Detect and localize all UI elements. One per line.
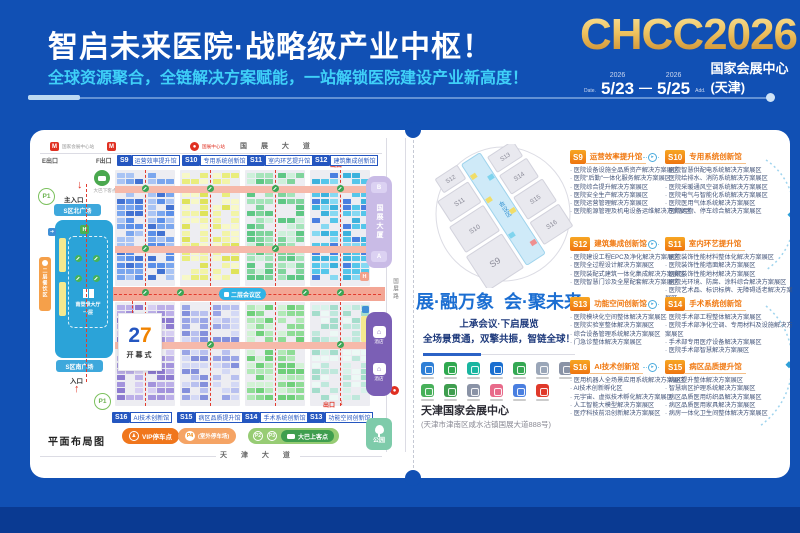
- hall-item: 医院给排水、消防系统解决方案展区: [665, 175, 793, 183]
- partner-app-caption: [467, 399, 480, 401]
- list-chip-S10: S10专用系统创新馆: [665, 150, 746, 164]
- road-right-label: 国展路: [391, 278, 399, 301]
- exit-bottom-label: 出口: [323, 400, 335, 409]
- escalator-icon: [302, 289, 309, 296]
- map-chip-name: 病区品质提升馆: [195, 412, 243, 423]
- ticket-perforation: [413, 140, 414, 468]
- map-chip-id: S10: [182, 155, 200, 166]
- list-chip-S13: S13功能空间创新馆: [570, 297, 651, 311]
- plan-caption: 平面布局图: [48, 433, 106, 448]
- escalator-icon: [177, 289, 184, 296]
- list-chip-id: S15: [665, 360, 685, 374]
- chip-connector-arrow-icon: ▸: [648, 240, 657, 249]
- conference-zone-pill: 二层会议区: [219, 288, 266, 300]
- escalator-icon: [75, 275, 82, 282]
- escalator-icon: [75, 255, 82, 262]
- footer-bar: [0, 507, 800, 533]
- escalator-icon: [93, 255, 100, 262]
- exit-e-label: E出口: [42, 156, 58, 165]
- escalator-icon: [93, 275, 100, 282]
- hall-item: 医院装饰性能墙面解决方案展区: [665, 262, 793, 270]
- registration-floor-label: 一层: [69, 309, 107, 316]
- list-chip-id: S13: [570, 297, 590, 311]
- date-end: 5/25: [657, 80, 690, 97]
- page-subtitle: 全球资源聚合，全链解决方案赋能，一站解锁医院建设产业新高度！: [48, 64, 528, 88]
- list-chip-S11: S11室内环艺提升馆: [665, 237, 745, 251]
- partner-app-caption: [490, 377, 503, 379]
- escalator-icon: [142, 245, 149, 252]
- map-chip-id: S11: [247, 155, 265, 166]
- opening-route: [132, 301, 133, 313]
- hall-list: S9运营效率提升馆医院设备设施全品质资产解决方案展区医院"后勤"一体化服务解决方…: [570, 130, 790, 478]
- tower-b-chip: B: [371, 182, 387, 193]
- partner-app-icon: [513, 362, 526, 379]
- metro-badge-icon: ●: [190, 142, 199, 151]
- info-desk-icon: H: [80, 225, 89, 234]
- escalator-icon: [337, 341, 344, 348]
- partner-app-icon: [490, 362, 503, 379]
- tower-a-chip: A: [371, 251, 387, 262]
- brand-logo: CHCC2026: [580, 10, 797, 60]
- map-chip-S9: S9运营效率提升馆: [117, 155, 180, 166]
- escalator-icon: [207, 341, 214, 348]
- header-divider-segment: [28, 95, 80, 100]
- slogan-sub2: 全场景贯通，双擎共振，智链全球！: [413, 331, 585, 345]
- venue-short: 国家会展中心(天津): [710, 58, 800, 96]
- hall-item: 智慧病区护理系统解决方案展区: [665, 385, 793, 393]
- main-card: M 国家会展中心站 M E出口 F出口 ● 国展中心站 国 展 大 道 国展路 …: [30, 130, 790, 478]
- year-start: 2026: [610, 72, 626, 79]
- walkway-band: [115, 186, 370, 193]
- middle-column: S9S10S11S12S13S14S15S16会议区 展·融万象会·聚未来 上承…: [413, 130, 585, 478]
- map-chip-id: S14: [242, 412, 260, 423]
- road-top-line: [40, 153, 382, 154]
- partner-app-caption: [536, 399, 549, 401]
- slogan-sub1: 上承会议·下启展览: [413, 316, 585, 330]
- list-chip-name: 功能空间创新馆: [590, 297, 651, 311]
- link-bridge-icon: H: [360, 272, 369, 281]
- year-end: 2026: [666, 72, 682, 79]
- hotel-icon: ⌂: [373, 363, 386, 375]
- list-chip-id: S16: [570, 360, 590, 374]
- list-chip-S9: S9运营效率提升馆: [570, 150, 646, 164]
- address-label: Add.: [695, 88, 705, 94]
- partner-app-icon: [444, 362, 457, 379]
- hall-item: 医院装饰性能地材解决方案展区: [665, 271, 793, 279]
- map-chip-S11: S11室内环艺提升馆: [247, 155, 313, 166]
- escalator-icon: [272, 185, 279, 192]
- south-plaza: S区南广场: [56, 360, 103, 372]
- channel-tag: [59, 238, 66, 272]
- main-entrance-arrow-icon: ↓: [77, 180, 83, 191]
- partner-app-caption: [536, 377, 549, 379]
- hall-item: 病房一体化卫生间整体解决方案展区: [665, 410, 793, 418]
- map-chip-id: S15: [177, 412, 195, 423]
- partner-app-caption: [490, 399, 503, 401]
- list-chip-name: 建筑集成创新馆: [590, 237, 651, 251]
- chip-connector-arrow-icon: ▸: [648, 300, 657, 309]
- map-chip-id: S16: [112, 412, 130, 423]
- guozhan-tower: B 国展大厦 A: [366, 176, 392, 268]
- hotel-label: 酒店: [374, 376, 383, 382]
- map-chip-S14: S14手术系统创新馆: [242, 412, 308, 423]
- partner-app-caption: [444, 377, 457, 379]
- road-right-line: [405, 138, 406, 452]
- edition-logo: 27: [128, 325, 151, 346]
- escalator-icon: [337, 289, 344, 296]
- list-chip-S16: S16AI技术创新馆: [570, 360, 643, 374]
- ticket-notch: [405, 470, 421, 486]
- partner-app-icon: [536, 362, 549, 379]
- chip-connector-arrow-icon: ▸: [648, 153, 657, 162]
- hall-item: 医院采暖通风空调系统解决方案展区: [665, 184, 793, 192]
- page-title: 智启未来医院·战略级产业中枢！: [48, 22, 493, 66]
- hall-items-S15: 病区提升整体解决方案展区智慧病区护理系统解决方案展区病区品质医用纺织品解决方案展…: [665, 377, 793, 418]
- list-chip-id: S14: [665, 297, 685, 311]
- map-chip-id: S13: [307, 412, 325, 423]
- venue-name: 天津国家会展中心: [421, 402, 509, 418]
- escalator-icon: [272, 245, 279, 252]
- opening-ceremony-label: 开幕式: [127, 350, 154, 360]
- chip-connector-arrow-icon: ▸: [648, 363, 657, 372]
- hall-item: 医院电气与智能化系统解决方案展区: [665, 192, 793, 200]
- venue-address: (天津市津南区咸水沽镇国展大道888号): [421, 419, 551, 430]
- partner-app-icon: [513, 384, 526, 401]
- map-chip-S13: S13功能空间创新馆: [307, 412, 373, 423]
- hall-item: 病区品质医用纺织品解决方案展区: [665, 394, 793, 402]
- list-chip-name: 病区品质提升馆: [685, 360, 746, 374]
- road-bottom-line: [40, 456, 382, 457]
- metro-badge-label: 国展中心站: [202, 144, 225, 150]
- partner-icons-row2: [421, 384, 549, 401]
- bus-dropoff-icon: [94, 170, 110, 186]
- partner-app-caption: [444, 399, 457, 401]
- list-chip-name: 专用系统创新馆: [685, 150, 746, 164]
- escalator-icon: [207, 185, 214, 192]
- hotel-label: 酒店: [374, 339, 383, 345]
- list-chip-id: S12: [570, 237, 590, 251]
- partner-icons-row1: [421, 362, 572, 379]
- metro-station-label: 国家会展中心站: [62, 144, 94, 150]
- legend-bus-boarding: P2 P3 大巴上客点: [248, 428, 339, 444]
- partner-app-icon: [421, 362, 434, 379]
- partner-app-caption: [513, 399, 526, 401]
- dining-icon: [42, 260, 48, 266]
- metro-icon: M: [107, 142, 116, 151]
- registration-label: 南登录大厅: [69, 301, 107, 308]
- hall-item: 手术部专用医疗设备解决方案展区: [665, 339, 793, 347]
- slogan: 展·融万象会·聚未来: [413, 288, 585, 314]
- map-chip-name: 专用系统创新馆: [200, 155, 248, 166]
- map-chip-id: S12: [312, 155, 330, 166]
- list-chip-id: S11: [665, 237, 685, 251]
- escalator-icon: [337, 185, 344, 192]
- map-chip-name: AI技术创新馆: [130, 412, 172, 423]
- hall-items-S14: 医院手术部工程整体解决方案展区医院手术部净化空调、专用材料及设施解决方案展区手术…: [665, 314, 793, 355]
- escalator-icon: [142, 289, 149, 296]
- map-chip-name: 建筑集成创新馆: [330, 155, 378, 166]
- event-dates: Date. 2026 5/23 — 2026 5/25 Add. 国家会展中心(…: [584, 58, 800, 97]
- metro-icon: M: [50, 142, 59, 151]
- north-plaza: S区北广场: [54, 204, 101, 216]
- opening-ceremony-box: 27 开幕式: [118, 313, 162, 371]
- hall-item: 医院光环境、防腐、涂料综合解决方案展区: [665, 279, 793, 287]
- channel-tag: [59, 282, 66, 316]
- hotel-block: ⌂酒店 ⌂酒店: [366, 312, 392, 396]
- map-chip-S16: S16AI技术创新馆: [112, 412, 172, 423]
- tree-icon: [375, 425, 384, 434]
- map-chip-name: 手术系统创新馆: [260, 412, 308, 423]
- partner-app-icon: [444, 384, 457, 401]
- mid-divider: [423, 354, 575, 355]
- list-chip-S14: S14手术系统创新馆: [665, 297, 746, 311]
- registration-hall: H 南登录大厅 一层: [55, 220, 113, 358]
- parking-p1-badge: P1: [38, 188, 55, 205]
- bus-icon: [287, 434, 295, 439]
- map-chip-name: 运营效率提升馆: [132, 155, 180, 166]
- legend-vip-parking: ♟ VIP停车点: [122, 428, 179, 444]
- main-entrance-label: 主入口: [64, 194, 84, 204]
- map-chip-S15: S15病区品质提升馆: [177, 412, 243, 423]
- hall-item: 病区品质医用家具解决方案展区: [665, 402, 793, 410]
- partner-app-icon: [467, 384, 480, 401]
- partner-app-caption: [467, 377, 480, 379]
- visitor-route: [86, 184, 87, 382]
- list-chip-name: AI技术创新馆: [590, 360, 643, 374]
- tower-name: 国展大厦: [374, 204, 384, 240]
- hall-items-S10: 医院智慧供配电系统解决方案展区医院给排水、消防系统解决方案展区医院采暖通风空调系…: [665, 167, 793, 217]
- dining-zone-tag: 二层餐饮区: [39, 257, 51, 311]
- list-chip-S12: S12建筑集成创新馆: [570, 237, 651, 251]
- park-block: 公园: [366, 418, 392, 450]
- map-chip-name: 室内环艺提升馆: [265, 155, 313, 166]
- entrance-marker-icon: [362, 306, 369, 313]
- list-chip-name: 手术系统创新馆: [685, 297, 746, 311]
- walkway-band: [115, 246, 370, 253]
- partner-app-caption: [421, 399, 434, 401]
- map-chip-id: S9: [117, 155, 132, 166]
- venue-minimap: S9S10S11S12S13S14S15S16会议区: [425, 144, 581, 288]
- hall-item: 医院污物、停车综合解决方案展区: [665, 208, 793, 216]
- floor-plan: M 国家会展中心站 M E出口 F出口 ● 国展中心站 国 展 大 道 国展路 …: [30, 130, 413, 478]
- building-icon: [83, 289, 94, 298]
- road-bottom-label: 天 津 大 道: [216, 450, 300, 460]
- partner-app-caption: [513, 377, 526, 379]
- road-top-label: 国 展 大 道: [240, 141, 316, 151]
- list-chip-S15: S15病区品质提升馆: [665, 360, 746, 374]
- hotel-icon: ⌂: [373, 326, 386, 338]
- registration-inner-zone: 南登录大厅 一层: [68, 236, 108, 328]
- list-chip-name: 运营效率提升馆: [586, 150, 647, 164]
- partner-app-icon: [490, 384, 503, 401]
- stairs-icon: [224, 292, 229, 297]
- partner-app-icon: [421, 384, 434, 401]
- partner-app-caption: [421, 377, 434, 379]
- partner-app-icon: [467, 362, 480, 379]
- ticket-notch: [405, 122, 421, 138]
- list-chip-name: 室内环艺提升馆: [685, 237, 746, 251]
- entrance-marker-icon: ➜: [48, 228, 56, 236]
- legend-outdoor-parking: P4 (室外停车场): [178, 428, 236, 444]
- hall-item: 医院手术部净化空调、专用材料及设施解决方案展区: [665, 322, 793, 339]
- exit-f-label: F出口: [96, 156, 112, 165]
- date-start: 5/23: [601, 80, 634, 97]
- parking-p1-badge: P1: [94, 393, 111, 410]
- list-chip-id: S10: [665, 150, 685, 164]
- date-label: Date.: [584, 88, 596, 94]
- map-chip-S10: S10专用系统创新馆: [182, 155, 248, 166]
- escalator-icon: [142, 185, 149, 192]
- vip-person-icon: ♟: [129, 431, 139, 441]
- map-chip-S12: S12建筑集成创新馆: [312, 155, 378, 166]
- hall-S14-booths: [245, 302, 305, 406]
- hall-S15-booths: [180, 302, 240, 406]
- south-entrance-arrow-icon: ↑: [74, 384, 80, 395]
- date-separator: —: [639, 80, 652, 95]
- hall-item: 医院手术部智慧解决方案展区: [665, 347, 793, 355]
- partner-app-icon: [536, 384, 549, 401]
- list-chip-id: S9: [570, 150, 586, 164]
